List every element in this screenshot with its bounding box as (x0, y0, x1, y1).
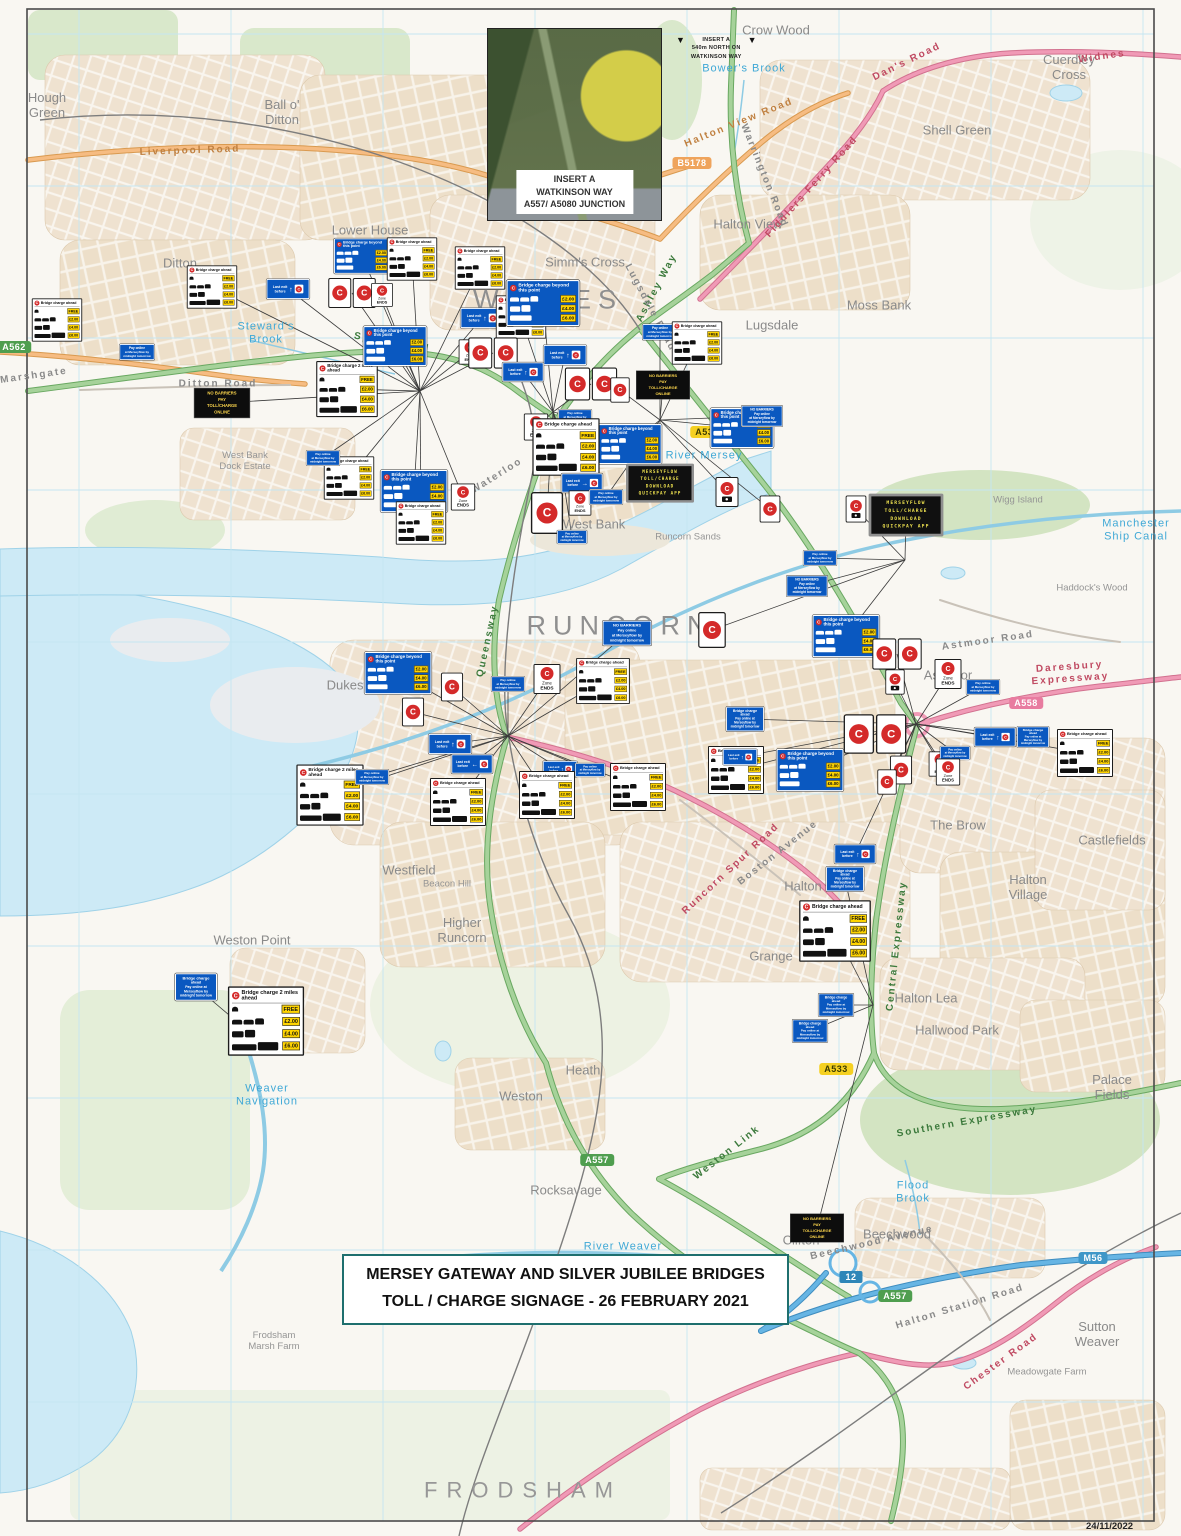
price-tag: £6.00 (491, 280, 503, 286)
place-label: Astmoor Road (941, 629, 1035, 653)
vehicle-icons (366, 340, 390, 345)
vehicle-row: FREE (35, 307, 80, 315)
sign-text-line: before (728, 757, 740, 760)
sign-text-line: midnight tomorrow (806, 560, 835, 564)
toll-sign-body: CBridge charge beyond this point£2.00£4.… (776, 749, 843, 791)
place-label: Beacon Hill (423, 880, 471, 891)
price-tag: £6.00 (68, 332, 80, 338)
vehicle-row: £4.00 (337, 257, 388, 264)
price-tag: £6.00 (708, 355, 720, 361)
vehicle-row: £6.00 (337, 264, 388, 271)
charge-c-plate: C (760, 496, 781, 523)
charge-c-icon: C (579, 660, 584, 665)
charge-c-icon: C (481, 761, 487, 767)
vehicle-icons (713, 439, 732, 444)
charge-c-plate: C (328, 278, 351, 308)
vehicle-icons (390, 248, 394, 251)
minibus-icon (510, 307, 520, 312)
charge-c-icon: C (510, 285, 517, 292)
car-icon (399, 521, 406, 524)
toll-sign-body: C (610, 377, 629, 402)
vehicle-row: £6.00 (613, 800, 663, 809)
vms-text-line: QUICKPAY APP (872, 523, 939, 531)
price-tag: £6.00 (559, 809, 572, 816)
price-tag: £6.00 (282, 1042, 300, 1051)
charge-c-plate: C (844, 714, 874, 754)
vehicle-row: FREE (613, 773, 663, 782)
mpv-icon (352, 251, 358, 255)
vehicle-icons (327, 475, 348, 479)
mpv-icon (530, 296, 538, 301)
hgv-icon (407, 272, 421, 277)
sign-text-line: midnight tomorrow (645, 334, 675, 338)
price-tag: £4.00 (282, 1029, 300, 1038)
price-tag: £2.00 (360, 386, 374, 393)
sign-header: CBridge charge beyond this point (601, 427, 658, 437)
camera-enforcement-plate: C (846, 496, 867, 523)
car-icon (320, 388, 328, 392)
vehicle-row: FREE (675, 330, 720, 338)
vehicle-row: £6.00 (711, 783, 761, 792)
vehicle-row: £6.00 (327, 489, 372, 497)
minibus-icon (780, 773, 789, 778)
car-icon (384, 486, 392, 490)
sign-header: CBridge charge beyond this point (780, 752, 841, 762)
charge-c-icon: C (296, 286, 302, 292)
vehicle-row: FREE (522, 781, 572, 790)
bus-icon (366, 357, 385, 362)
price-tag: £4.00 (708, 347, 720, 353)
place-label: Shell Green (923, 124, 992, 139)
route-shield: B5178 (672, 157, 711, 169)
arrow-icon: ↑ (483, 314, 486, 322)
charge-c-icon: C (890, 674, 901, 685)
vehicle-row: £4.00 (579, 684, 627, 693)
price-tag: £2.00 (344, 792, 360, 800)
vehicle-icons (613, 801, 647, 807)
car-icon (510, 298, 519, 302)
mpv-icon (539, 792, 546, 797)
charge-c-icon: C (614, 384, 627, 397)
vehicle-icons (536, 453, 556, 460)
place-label: Wigg Island (993, 496, 1043, 507)
hgv-icon (258, 1042, 278, 1050)
insert-pointer-text: INSERT A 540m NORTH ON WATKINSON WAY (691, 36, 742, 61)
bus-icon (601, 455, 620, 460)
vehicle-icons (510, 316, 532, 321)
price-tag: £6.00 (360, 490, 372, 496)
mpv-icon (619, 438, 626, 443)
car-icon (613, 785, 621, 789)
price-tag: £4.00 (430, 493, 444, 500)
sign-text-line: midnight tomorrow (606, 638, 649, 643)
map-title-box: MERSEY GATEWAY AND SILVER JUBILEE BRIDGE… (342, 1254, 789, 1325)
price-tag: £6.00 (375, 265, 387, 271)
car-icon (682, 341, 689, 344)
car-icon (366, 341, 374, 345)
car-icon (458, 266, 465, 269)
toll-sign-body: Bridge chargeaheadPay online atMerseyflo… (726, 707, 764, 732)
bus-icon (320, 408, 340, 413)
toll-sign-body: CBridge charge beyond this point£2.00£4.… (598, 424, 661, 464)
toll-sign-body: Pay onlineat Merseyflow bymidnight tomor… (119, 344, 154, 360)
toll-sign-body: CBridge charge beyond this point£2.00£4.… (506, 280, 579, 326)
charge-c-plate: C (861, 850, 869, 858)
sign-text-line: ONLINE (195, 409, 248, 415)
mpv-icon (205, 284, 211, 288)
toll-sign-body: CC (872, 638, 921, 669)
price-tag: £4.00 (360, 482, 372, 488)
vehicle-icons (711, 775, 728, 781)
minibus-icon (1060, 759, 1069, 764)
vehicle-row: £2.00 (232, 1015, 300, 1027)
vehicle-icons (522, 809, 556, 815)
vehicle-row: £2.00 (399, 518, 444, 526)
sign-header: CBridge charge 2 miles ahead (232, 990, 300, 1003)
vehicle-row: £4.00 (35, 323, 80, 331)
place-label: Liverpool Road (139, 143, 240, 158)
vehicle-row: £2.00 (536, 440, 596, 451)
moto-icon (300, 783, 305, 787)
place-label: Halton Station Road (894, 1282, 1025, 1332)
insert-a-label-line2: WATKINSON WAY (524, 186, 625, 199)
vehicle-icons (579, 686, 595, 691)
vehicle-icons (803, 949, 847, 957)
sign-text-line: ONLINE (792, 1234, 843, 1240)
minibus-icon (35, 326, 43, 330)
vehicle-row: £6.00 (433, 815, 483, 824)
price-tag: £4.00 (470, 807, 483, 814)
place-label: River Mersey (666, 450, 743, 463)
hgv-icon (827, 949, 846, 957)
toll-sign-body: CZoneENDS (935, 659, 962, 689)
car-icon (390, 257, 397, 260)
place-label: Ball o' Ditton (264, 98, 299, 128)
mpv-icon (731, 422, 738, 427)
vehicle-row: FREE (803, 912, 867, 924)
sign-header-text: Bridge charge 2 miles ahead (308, 767, 360, 777)
sign-text-line: before (456, 764, 470, 768)
place-label: Manchester Ship Canal (1102, 517, 1169, 542)
route-shield: A557 (580, 1154, 614, 1166)
price-tag: £4.00 (560, 305, 576, 313)
sign-header-text: Bridge charge beyond this point (823, 618, 876, 627)
vehicle-row: £6.00 (390, 270, 435, 278)
moto-icon (399, 512, 403, 515)
toll-sign-body: CBridge charge 2 miles aheadFREE£2.00£4.… (316, 361, 378, 417)
price-tag: £2.00 (423, 255, 435, 261)
route-shield: M56 (1078, 1252, 1107, 1264)
arrow-icon: ↑ (524, 368, 527, 375)
toll-sign-body: C (531, 492, 563, 534)
price-tag: £6.00 (615, 694, 627, 700)
down-triangle-icon: ▼ (748, 36, 757, 45)
car-icon (675, 341, 682, 344)
car-icon (722, 423, 730, 427)
car-icon (803, 928, 813, 932)
arrow-icon: ↑ (289, 285, 292, 293)
charge-c-icon: C (711, 749, 717, 755)
mpv-icon (798, 764, 805, 769)
vehicle-row: £2.00 (327, 473, 372, 481)
charge-c-icon: C (942, 761, 954, 773)
toll-sign-body: Last exitbefore↑C (502, 362, 543, 381)
vehicle-row: £2.00 (368, 665, 429, 674)
vehicle-icons (433, 799, 457, 804)
vehicle-icons (232, 1042, 278, 1050)
price-tag: £2.00 (560, 295, 576, 303)
bus-icon (327, 492, 343, 496)
van-icon (378, 675, 386, 681)
vehicle-row: £4.00 (803, 935, 867, 947)
sign-header-text: Bridge charge beyond this point (787, 752, 840, 761)
minibus-icon (399, 529, 407, 533)
vehicle-row: £2.00 (803, 924, 867, 936)
price-tag: £6.00 (580, 464, 596, 472)
price-tag: £4.00 (748, 775, 761, 782)
place-label: Weston Link (691, 1123, 762, 1182)
place-label: Moss Bank (847, 299, 911, 314)
map-title-line1: MERSEY GATEWAY AND SILVER JUBILEE BRIDGE… (344, 1266, 787, 1284)
van-icon (532, 800, 540, 806)
place-label: Runcorn Spur Road (680, 821, 782, 917)
charge-c-icon: C (458, 741, 464, 747)
hgv-icon (452, 816, 467, 822)
vehicle-row: £2.00 (601, 436, 658, 444)
place-label: Flood Brook (896, 1179, 930, 1204)
charge-c-icon: C (575, 493, 586, 504)
vehicle-icons (816, 630, 842, 635)
toll-sign-body: CBridge charge aheadFREE£2.00£4.00£6.00 (1057, 729, 1113, 777)
place-label: Weaver Navigation (236, 1082, 298, 1107)
vehicle-row: £2.00 (384, 483, 445, 492)
sign-text-line: before (840, 854, 854, 858)
mpv-icon (402, 485, 409, 490)
vehicle-row: £2.00 (190, 282, 235, 290)
car-icon (42, 318, 49, 321)
car-icon (711, 768, 719, 772)
moto-icon (522, 783, 527, 787)
vehicle-icons (327, 467, 331, 470)
vehicle-row: FREE (458, 255, 503, 263)
charge-c-icon: C (498, 345, 514, 361)
vehicle-row: £6.00 (601, 453, 658, 461)
charge-c-icon: C (332, 286, 347, 301)
sign-header-text: Bridge charge ahead (41, 301, 77, 305)
charge-c-icon: C (780, 753, 786, 759)
place-label: Halton Village (1009, 873, 1048, 903)
vehicle-icons (601, 455, 620, 460)
price-tag: £4.00 (615, 686, 627, 692)
vehicle-row: £2.00 (300, 790, 360, 801)
vehicle-icons (433, 807, 450, 813)
bus-icon (433, 818, 451, 823)
price-tag: £6.00 (645, 454, 659, 461)
vehicle-row: FREE (320, 375, 375, 385)
mpv-icon (728, 767, 735, 772)
price-tag: FREE (614, 668, 627, 674)
charge-c-icon: C (472, 345, 488, 361)
vehicle-row: £4.00 (232, 1028, 300, 1040)
toll-sign-body: C (402, 698, 424, 727)
bus-icon (713, 439, 732, 444)
price-tag: £2.00 (559, 791, 572, 798)
vehicle-row: £2.00 (433, 797, 483, 806)
vehicle-row: FREE (327, 465, 372, 473)
vehicle-row: FREE (232, 1003, 300, 1015)
bus-icon (499, 331, 515, 335)
price-tag: £6.00 (532, 329, 544, 335)
place-label: Bower's Brook (702, 63, 786, 76)
vehicle-row: FREE (399, 510, 444, 518)
vehicle-row: £2.00 (458, 263, 503, 271)
vehicle-row: £4.00 (190, 290, 235, 298)
charge-c-icon: C (433, 781, 439, 787)
sign-header: CBridge charge ahead (1060, 732, 1110, 739)
price-tag: £6.00 (1097, 767, 1110, 774)
mpv-icon (342, 475, 348, 479)
charge-c-icon: C (569, 376, 586, 393)
price-tag: £2.00 (826, 763, 840, 770)
toll-sign-body: CZoneENDS (371, 283, 393, 307)
charge-c-icon: C (881, 776, 894, 789)
charge-c-plate: C (441, 673, 463, 702)
route-shield: A533 (819, 1063, 853, 1075)
vehicle-row: £2.00 (711, 765, 761, 774)
vehicle-row: FREE (390, 246, 435, 254)
price-tag: £6.00 (414, 683, 428, 690)
sign-header-text: Bridge charge ahead (681, 324, 717, 328)
toll-sign-body: C (760, 496, 781, 523)
car-icon (397, 257, 404, 260)
price-tag: £6.00 (223, 299, 235, 305)
vehicle-icons (536, 443, 564, 448)
hgv-icon (692, 356, 706, 361)
place-label: Runcorn Sands (655, 533, 720, 544)
charge-c-plate: C (295, 285, 304, 294)
charge-c-plate: C (402, 698, 424, 727)
vehicle-row: £2.00 (366, 338, 423, 346)
van-icon (466, 273, 473, 278)
charge-c-icon: C (713, 412, 719, 418)
minibus-icon (536, 455, 546, 460)
toll-sign-body: Bridge chargeaheadPay online atMerseyflo… (175, 973, 217, 1001)
minibus-icon (384, 494, 393, 499)
arrow-icon: → (582, 479, 588, 486)
vehicle-row: £2.00 (35, 315, 80, 323)
arrow-icon: ↑ (856, 850, 859, 857)
charge-c-icon: C (320, 365, 326, 371)
car-icon (244, 1020, 254, 1025)
van-icon (790, 772, 798, 778)
minibus-icon (390, 265, 398, 269)
vehicle-icons (399, 528, 414, 533)
charge-c-icon: C (406, 705, 420, 719)
price-tag: FREE (490, 256, 502, 262)
date-stamp: 24/11/2022 (1086, 1521, 1133, 1532)
charge-c-plate: C (529, 368, 537, 376)
toll-sign-body: CZoneENDS (936, 759, 960, 786)
sign-text-line: midnight tomorrow (309, 460, 338, 464)
car-icon (197, 285, 204, 288)
charge-c-icon: C (457, 486, 469, 498)
place-label: Lugsdale (746, 319, 799, 334)
place-label: Marshgate (0, 366, 68, 387)
place-label: Castlefields (1078, 834, 1145, 849)
charge-c-plate: C (877, 769, 896, 794)
price-tag: £2.00 (708, 339, 720, 345)
price-tag: £4.00 (68, 324, 80, 330)
price-tag: £4.00 (645, 446, 659, 453)
van-icon (623, 792, 631, 798)
vehicle-icons (190, 276, 194, 279)
car-icon (522, 793, 530, 797)
vehicle-row: £6.00 (232, 1040, 300, 1052)
charge-c-icon: C (573, 352, 579, 358)
toll-sign-body: CZoneENDS (451, 484, 475, 511)
vehicle-icons (300, 803, 320, 810)
hgv-icon (207, 300, 221, 305)
place-label: Southern Expressway (896, 1104, 1038, 1140)
minibus-icon (368, 676, 377, 681)
charge-c-icon: C (703, 621, 721, 639)
car-icon (531, 793, 539, 797)
car-icon (1060, 751, 1068, 755)
toll-sign-body: MERSEYFLOWTOLL/CHARGEDOWNLOADQUICKPAY AP… (626, 464, 694, 503)
van-icon (407, 528, 414, 533)
car-icon (536, 444, 545, 448)
price-tag: £6.00 (650, 801, 663, 808)
price-tag: FREE (359, 466, 371, 472)
charge-c-icon: C (591, 480, 597, 486)
route-shield: A562 (0, 341, 31, 353)
price-tag: £6.00 (850, 949, 867, 957)
moto-icon (711, 758, 716, 762)
bus-icon (337, 266, 354, 270)
toll-sign-body: CBridge charge aheadFREE£2.00£4.00£6.00 (799, 900, 871, 961)
sign-text-line: midnight tomorrow (789, 590, 825, 594)
mpv-icon (384, 340, 391, 345)
vehicle-icons (522, 800, 539, 806)
vehicle-icons (711, 784, 745, 790)
mpv-icon (595, 678, 601, 682)
moto-icon (536, 433, 541, 437)
toll-sign-body: CZoneENDS (569, 490, 592, 515)
toll-sign-body: CC (328, 278, 376, 308)
sign-text-line: midnight tomorrow (559, 539, 585, 542)
hgv-icon (475, 281, 489, 286)
hgv-icon (516, 330, 530, 335)
price-tag: £2.00 (223, 283, 235, 289)
toll-sign-body: CBridge charge beyond this point£2.00£4.… (812, 615, 879, 657)
minibus-icon (499, 323, 507, 327)
toll-sign-body: CBridge charge beyond this point£2.00£4.… (364, 652, 431, 694)
sign-header-text: Bridge charge ahead (1067, 732, 1107, 736)
price-tag: £2.00 (1097, 749, 1110, 756)
bus-icon (675, 357, 691, 361)
vehicle-icons (366, 357, 385, 362)
vehicle-icons (675, 356, 706, 361)
vehicle-row: £4.00 (458, 271, 503, 279)
charge-c-icon: C (384, 474, 390, 480)
last-exit-text: Last exitbefore (566, 479, 580, 487)
car-icon (442, 800, 450, 804)
car-icon (1069, 751, 1077, 755)
toll-sign-body: Bridge chargeaheadPay online atMerseyflo… (792, 1019, 827, 1042)
vehicle-icons (780, 781, 800, 786)
vms-text-line: TOLL/CHARGE (872, 507, 939, 515)
place-label: Cuerdley Cross (1043, 53, 1095, 83)
